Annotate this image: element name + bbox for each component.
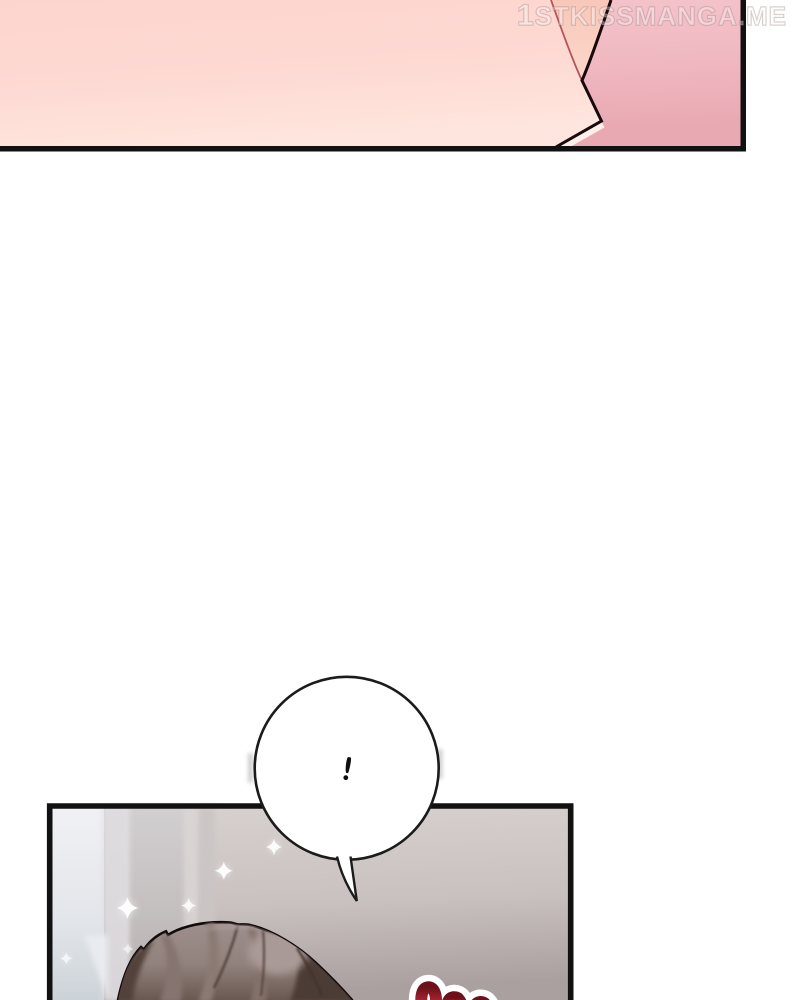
svg-text:1STKISSMANGA.ME: 1STKISSMANGA.ME bbox=[517, 0, 787, 32]
